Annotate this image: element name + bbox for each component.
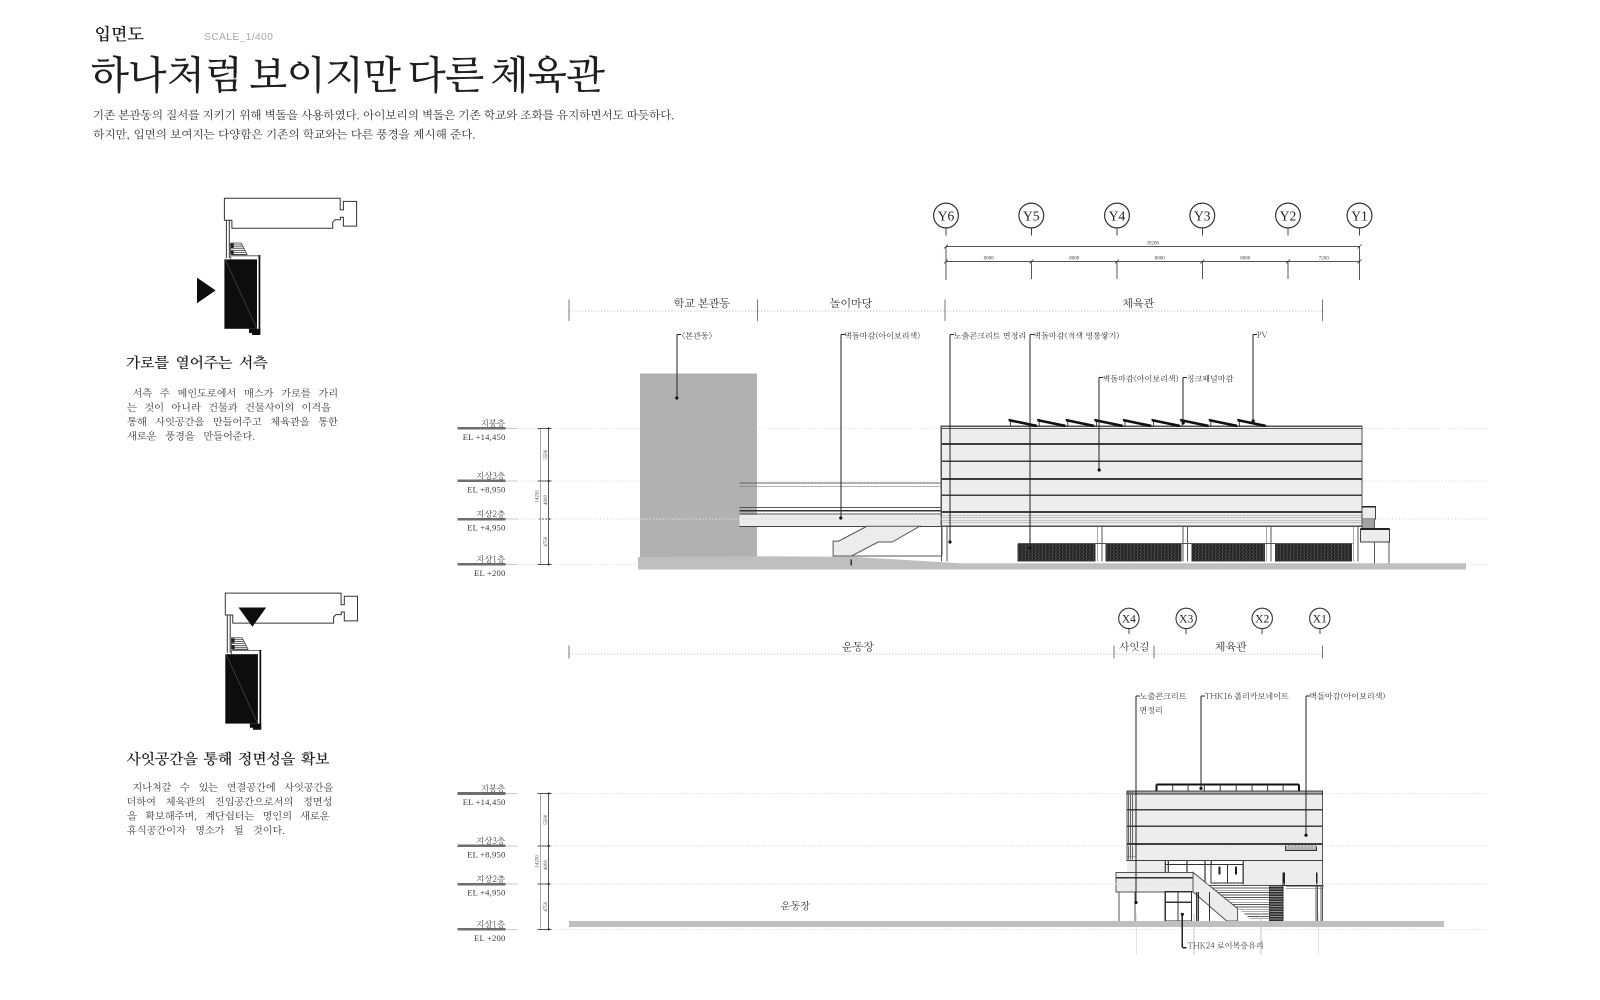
svg-text:14250: 14250 [535, 855, 540, 868]
svg-text:EL +4,950: EL +4,950 [467, 523, 505, 533]
svg-text:Y4: Y4 [1109, 208, 1126, 223]
svg-text:EL +4,950: EL +4,950 [467, 888, 505, 898]
svg-text:8000: 8000 [1155, 257, 1166, 262]
svg-text:EL +200: EL +200 [474, 568, 505, 578]
svg-text:X2: X2 [1255, 613, 1269, 625]
svg-text:5500: 5500 [544, 449, 549, 460]
svg-text:14250: 14250 [535, 490, 540, 503]
svg-text:Y2: Y2 [1280, 208, 1297, 223]
svg-text:SCALE_1/400: SCALE_1/400 [204, 32, 273, 43]
svg-text:39200: 39200 [1146, 242, 1159, 247]
svg-text:Y5: Y5 [1023, 208, 1040, 223]
svg-text:8000: 8000 [1240, 257, 1251, 262]
svg-text:Y1: Y1 [1351, 208, 1368, 223]
svg-text:8000: 8000 [984, 257, 995, 262]
svg-text:EL +8,950: EL +8,950 [467, 484, 505, 494]
svg-text:Y6: Y6 [938, 208, 955, 223]
svg-text:5500: 5500 [544, 814, 549, 825]
svg-text:EL +8,950: EL +8,950 [467, 849, 505, 859]
svg-text:Y3: Y3 [1194, 208, 1211, 223]
svg-text:7200: 7200 [1319, 257, 1330, 262]
svg-text:X3: X3 [1179, 613, 1193, 625]
svg-text:X4: X4 [1122, 613, 1136, 625]
svg-text:4750: 4750 [544, 901, 549, 912]
svg-text:EL +14,450: EL +14,450 [463, 432, 506, 442]
svg-text:X1: X1 [1313, 613, 1327, 625]
svg-text:EL +200: EL +200 [474, 933, 505, 943]
svg-text:4750: 4750 [544, 536, 549, 547]
svg-text:4000: 4000 [544, 495, 549, 506]
svg-text:8000: 8000 [1069, 257, 1080, 262]
svg-text:4000: 4000 [544, 860, 549, 871]
svg-text:EL +14,450: EL +14,450 [463, 797, 506, 807]
